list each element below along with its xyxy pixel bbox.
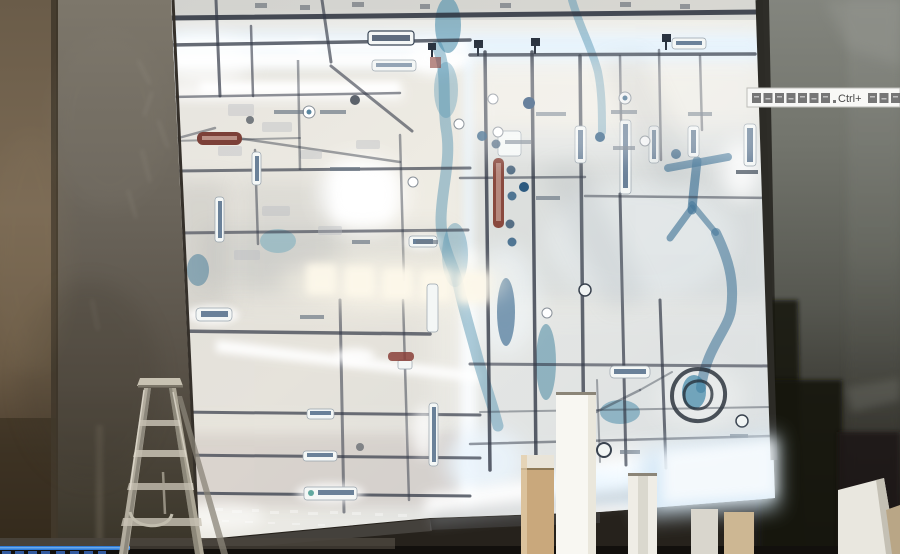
svg-text:Ctrl+: Ctrl+	[838, 93, 862, 105]
